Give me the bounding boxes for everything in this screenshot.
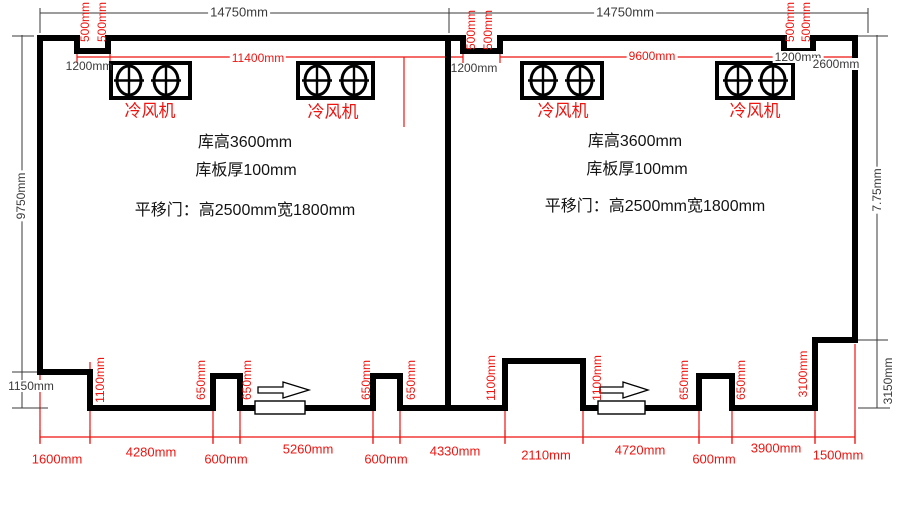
dim-step-height-left: 1150mm [6, 380, 56, 392]
dim-side-height-right: 7.75mm [871, 166, 883, 213]
dim-650-e: 650mm [678, 360, 690, 400]
cold-room-floor-plan: 14750mm14750mm1200mm1200mm1200mm2600mm11… [0, 0, 900, 506]
note-panel-thickness-right: 库板厚100mm [586, 162, 687, 178]
note-panel-thickness-left: 库板厚100mm [195, 163, 296, 179]
dim-inner-width-left: 11400mm [230, 52, 286, 64]
dim-bottom-2110: 2110mm [521, 449, 571, 462]
dim-bottom-4330: 4330mm [428, 445, 483, 458]
dim-650-b: 650mm [241, 360, 253, 400]
note-sliding-door-right: 平移门：高2500mm宽1800mm [545, 199, 766, 215]
dim-notch-500-r2: 500mm [800, 2, 812, 42]
dim-total-width-right: 14750mm [594, 6, 656, 19]
dim-1100-mid-right: 1100mm [591, 355, 603, 401]
dim-total-width-left: 14750mm [208, 6, 270, 19]
note-room-height-left: 库高3600mm [198, 135, 292, 151]
fan-label-right-1: 冷风机 [538, 103, 589, 120]
dim-650-c: 650mm [360, 360, 372, 400]
note-sliding-door-left: 平移门：高2500mm宽1800mm [135, 203, 356, 219]
dim-bottom-600-b: 600mm [364, 453, 407, 466]
note-room-height-right: 库高3600mm [588, 134, 682, 150]
dim-bottom-5260: 5260mm [281, 443, 336, 456]
dim-bottom-4280: 4280mm [124, 446, 179, 459]
dim-650-f: 650mm [735, 360, 747, 400]
dim-notch-500-m1: 500mm [465, 10, 477, 50]
dim-notch-offset-middle: 1200mm [451, 62, 498, 74]
annotation-labels-layer: 14750mm14750mm1200mm1200mm1200mm2600mm11… [0, 0, 900, 506]
dim-bottom-3900: 3900mm [749, 442, 804, 455]
dim-bottom-600-c: 600mm [692, 453, 735, 466]
dim-notch-offset-left: 1200mm [66, 60, 113, 72]
fan-label-right-2: 冷风机 [730, 103, 781, 120]
fan-label-left-1: 冷风机 [125, 103, 176, 120]
dim-side-height-left: 9750mm [15, 171, 27, 222]
dim-notch-500-r1: 500mm [784, 2, 796, 42]
dim-notch-500-m2: 500mm [482, 10, 494, 50]
fan-label-left-2: 冷风机 [308, 104, 359, 121]
dim-corner-right: 2600mm [811, 58, 862, 70]
dim-step-height-right: 3150mm [882, 356, 894, 407]
dim-1100-left-step: 1100mm [94, 357, 106, 403]
dim-bottom-600-a: 600mm [204, 453, 247, 466]
dim-notch-500-l2: 500mm [96, 2, 108, 42]
dim-1100-mid-left: 1100mm [485, 355, 497, 401]
dim-bottom-1500: 1500mm [813, 449, 864, 462]
dim-bottom-4720: 4720mm [613, 444, 668, 457]
dim-inner-width-right: 9600mm [627, 50, 678, 62]
dim-notch-500-l1: 500mm [79, 2, 91, 42]
dim-650-a: 650mm [195, 360, 207, 400]
dim-3100-right-step: 3100mm [797, 351, 809, 398]
dim-650-d: 650mm [405, 360, 417, 400]
dim-bottom-1600: 1600mm [32, 453, 83, 466]
